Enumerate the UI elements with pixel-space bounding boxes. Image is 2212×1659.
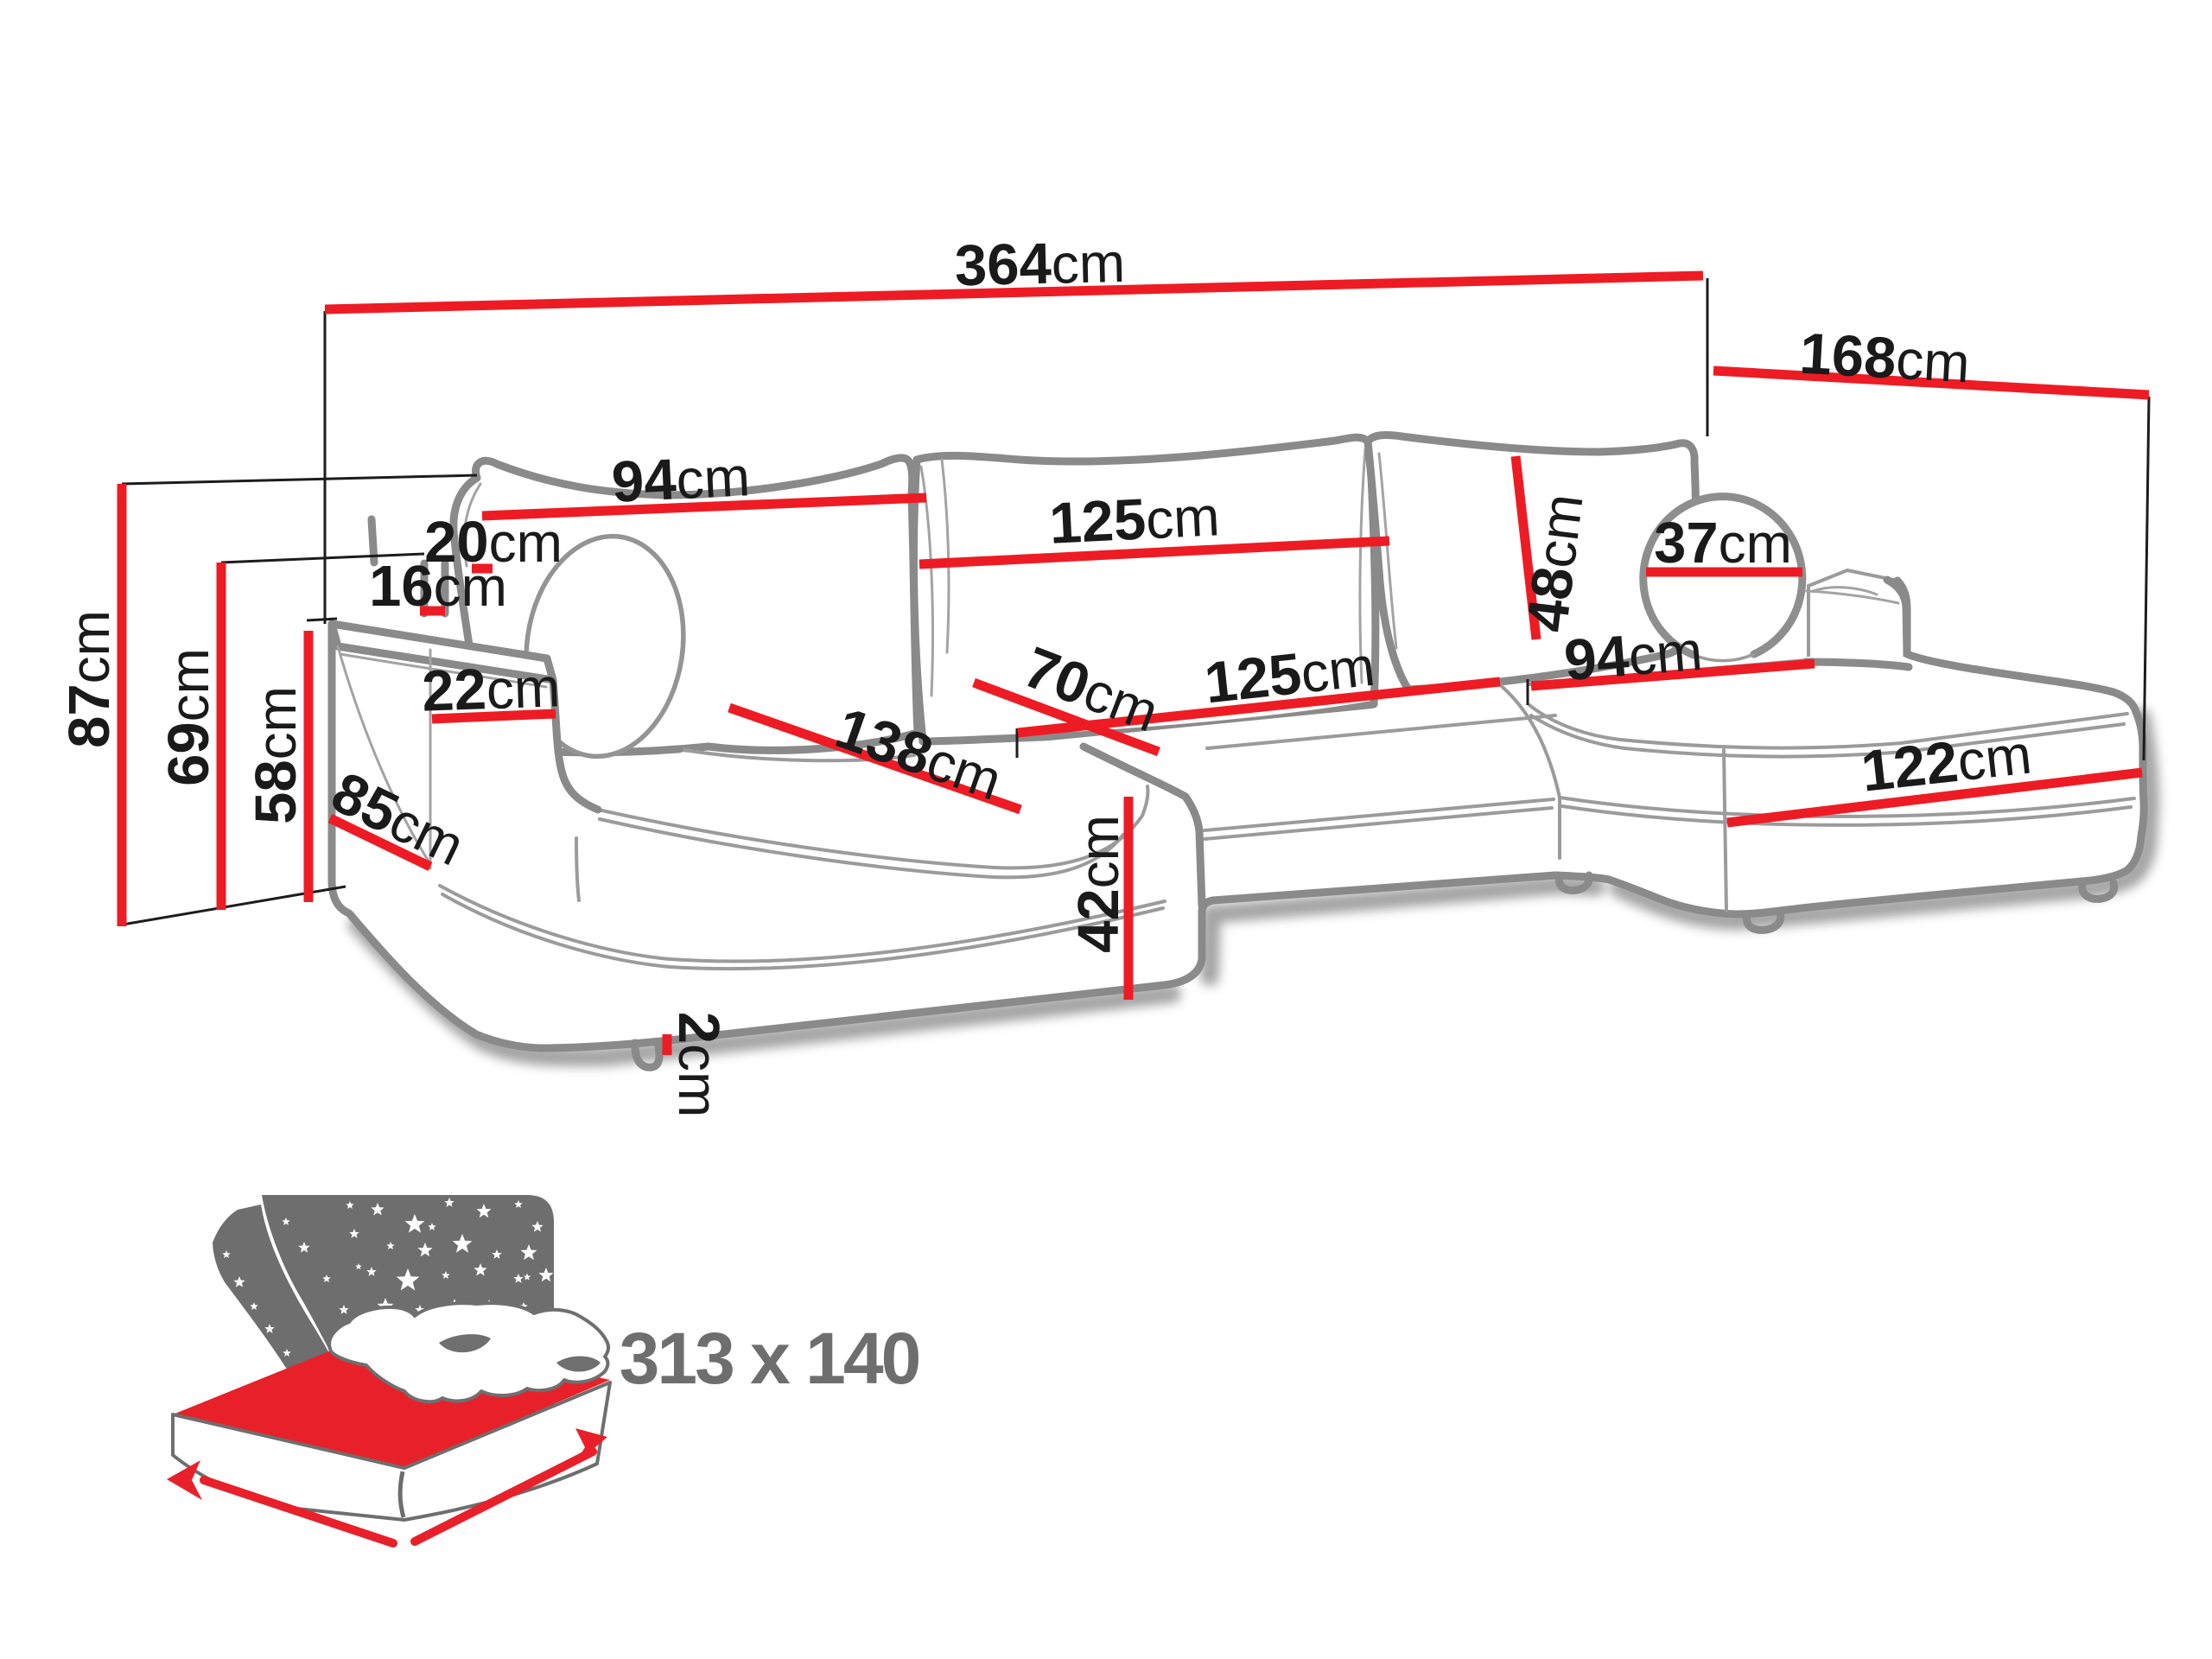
svg-text:87cm: 87cm bbox=[57, 610, 122, 748]
svg-text:42cm: 42cm bbox=[1066, 815, 1131, 953]
svg-text:22cm: 22cm bbox=[421, 654, 561, 724]
svg-text:168cm: 168cm bbox=[1798, 321, 1972, 396]
svg-text:2cm: 2cm bbox=[666, 1012, 731, 1118]
svg-text:364cm: 364cm bbox=[954, 230, 1126, 298]
svg-text:69cm: 69cm bbox=[156, 648, 221, 786]
svg-text:37cm: 37cm bbox=[1654, 511, 1792, 575]
svg-text:94cm: 94cm bbox=[610, 443, 751, 515]
svg-text:313 x 140: 313 x 140 bbox=[620, 1318, 919, 1399]
svg-text:125cm: 125cm bbox=[1048, 483, 1222, 556]
svg-text:16cm: 16cm bbox=[369, 554, 507, 619]
svg-text:58cm: 58cm bbox=[244, 686, 308, 824]
svg-text:94cm: 94cm bbox=[1562, 618, 1705, 694]
